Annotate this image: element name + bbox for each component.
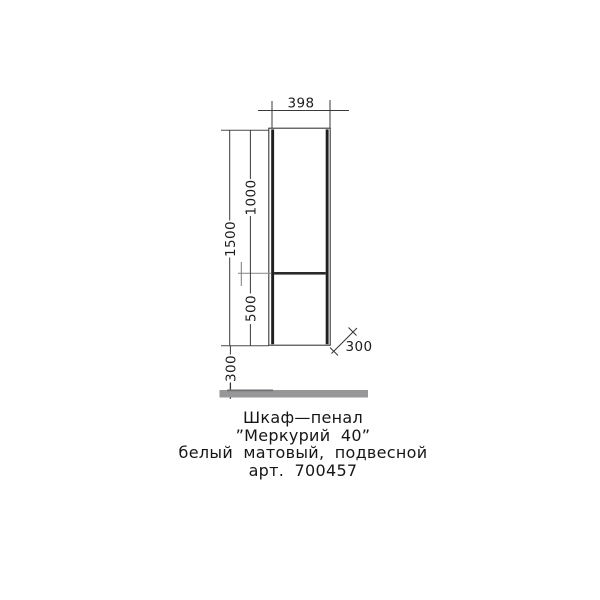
- total-height-label: 1500: [223, 221, 239, 257]
- product-spec-sheet: 398 1500 1000 500: [0, 0, 600, 600]
- product-caption: Шкаф—пенал ”Меркурий 40” белый матовый, …: [6, 409, 600, 479]
- right-door-edge: [326, 129, 329, 344]
- door-divider: [274, 272, 326, 275]
- cabinet-outline: [269, 128, 330, 345]
- depth-label: 300: [346, 339, 373, 355]
- depth-cross-upper: [349, 328, 357, 336]
- cabinet-front-view: [269, 128, 330, 345]
- floor-gap-label: 300: [223, 355, 239, 382]
- left-door-edge: [271, 129, 274, 344]
- technical-drawing: 398 1500 1000 500: [0, 0, 600, 600]
- lower-section-label: 500: [244, 295, 260, 322]
- product-name: ”Меркурий 40”: [6, 427, 600, 445]
- floor-line: [220, 390, 369, 398]
- depth-dimension: 300: [330, 328, 372, 356]
- product-article: арт. 700457: [6, 462, 600, 480]
- width-label: 398: [288, 96, 315, 112]
- height-dimensions: 1500 1000 500: [221, 130, 271, 346]
- width-dimension: 398: [258, 96, 349, 129]
- product-finish: белый матовый, подвесной: [6, 444, 600, 462]
- upper-section-label: 1000: [244, 180, 260, 216]
- product-type: Шкаф—пенал: [6, 409, 600, 427]
- floor-shadow-edge: [227, 390, 273, 392]
